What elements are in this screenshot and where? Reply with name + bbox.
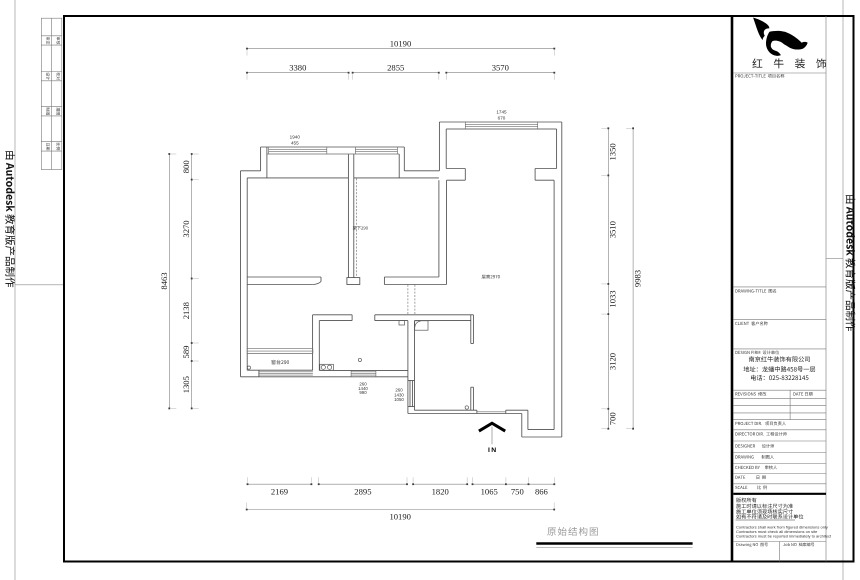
svg-text:2855: 2855 (387, 63, 404, 73)
svg-text:3380: 3380 (289, 63, 306, 73)
svg-text:9983: 9983 (632, 270, 642, 287)
svg-text:8463: 8463 (159, 272, 169, 289)
svg-text:1033: 1033 (608, 290, 618, 307)
svg-text:2169: 2169 (271, 486, 288, 496)
svg-text:750: 750 (511, 486, 524, 496)
svg-text:700: 700 (608, 412, 618, 425)
svg-text:589: 589 (181, 346, 191, 359)
svg-text:800: 800 (181, 160, 191, 173)
svg-text:3570: 3570 (492, 63, 509, 73)
svg-text:IN: IN (488, 447, 498, 454)
svg-text:1820: 1820 (432, 486, 449, 496)
svg-text:1065: 1065 (481, 486, 498, 496)
svg-text:1350: 1350 (608, 143, 618, 160)
svg-text:Contractors must be reported i: Contractors must be reported immediately… (736, 534, 832, 539)
svg-text:1745: 1745 (496, 110, 507, 115)
svg-text:3120: 3120 (608, 353, 618, 370)
svg-text:670: 670 (498, 116, 506, 121)
svg-text:2138: 2138 (181, 302, 191, 319)
svg-text:1050: 1050 (394, 397, 404, 402)
svg-text:10190: 10190 (389, 512, 410, 522)
svg-text:3510: 3510 (608, 221, 618, 238)
svg-text:990: 990 (359, 390, 367, 395)
svg-text:455: 455 (291, 141, 299, 146)
svg-text:1940: 1940 (290, 135, 301, 140)
svg-text:10190: 10190 (390, 38, 411, 48)
svg-text:1305: 1305 (181, 376, 191, 393)
svg-text:866: 866 (535, 486, 549, 496)
svg-text:2895: 2895 (354, 486, 371, 496)
svg-text:3270: 3270 (181, 220, 191, 237)
